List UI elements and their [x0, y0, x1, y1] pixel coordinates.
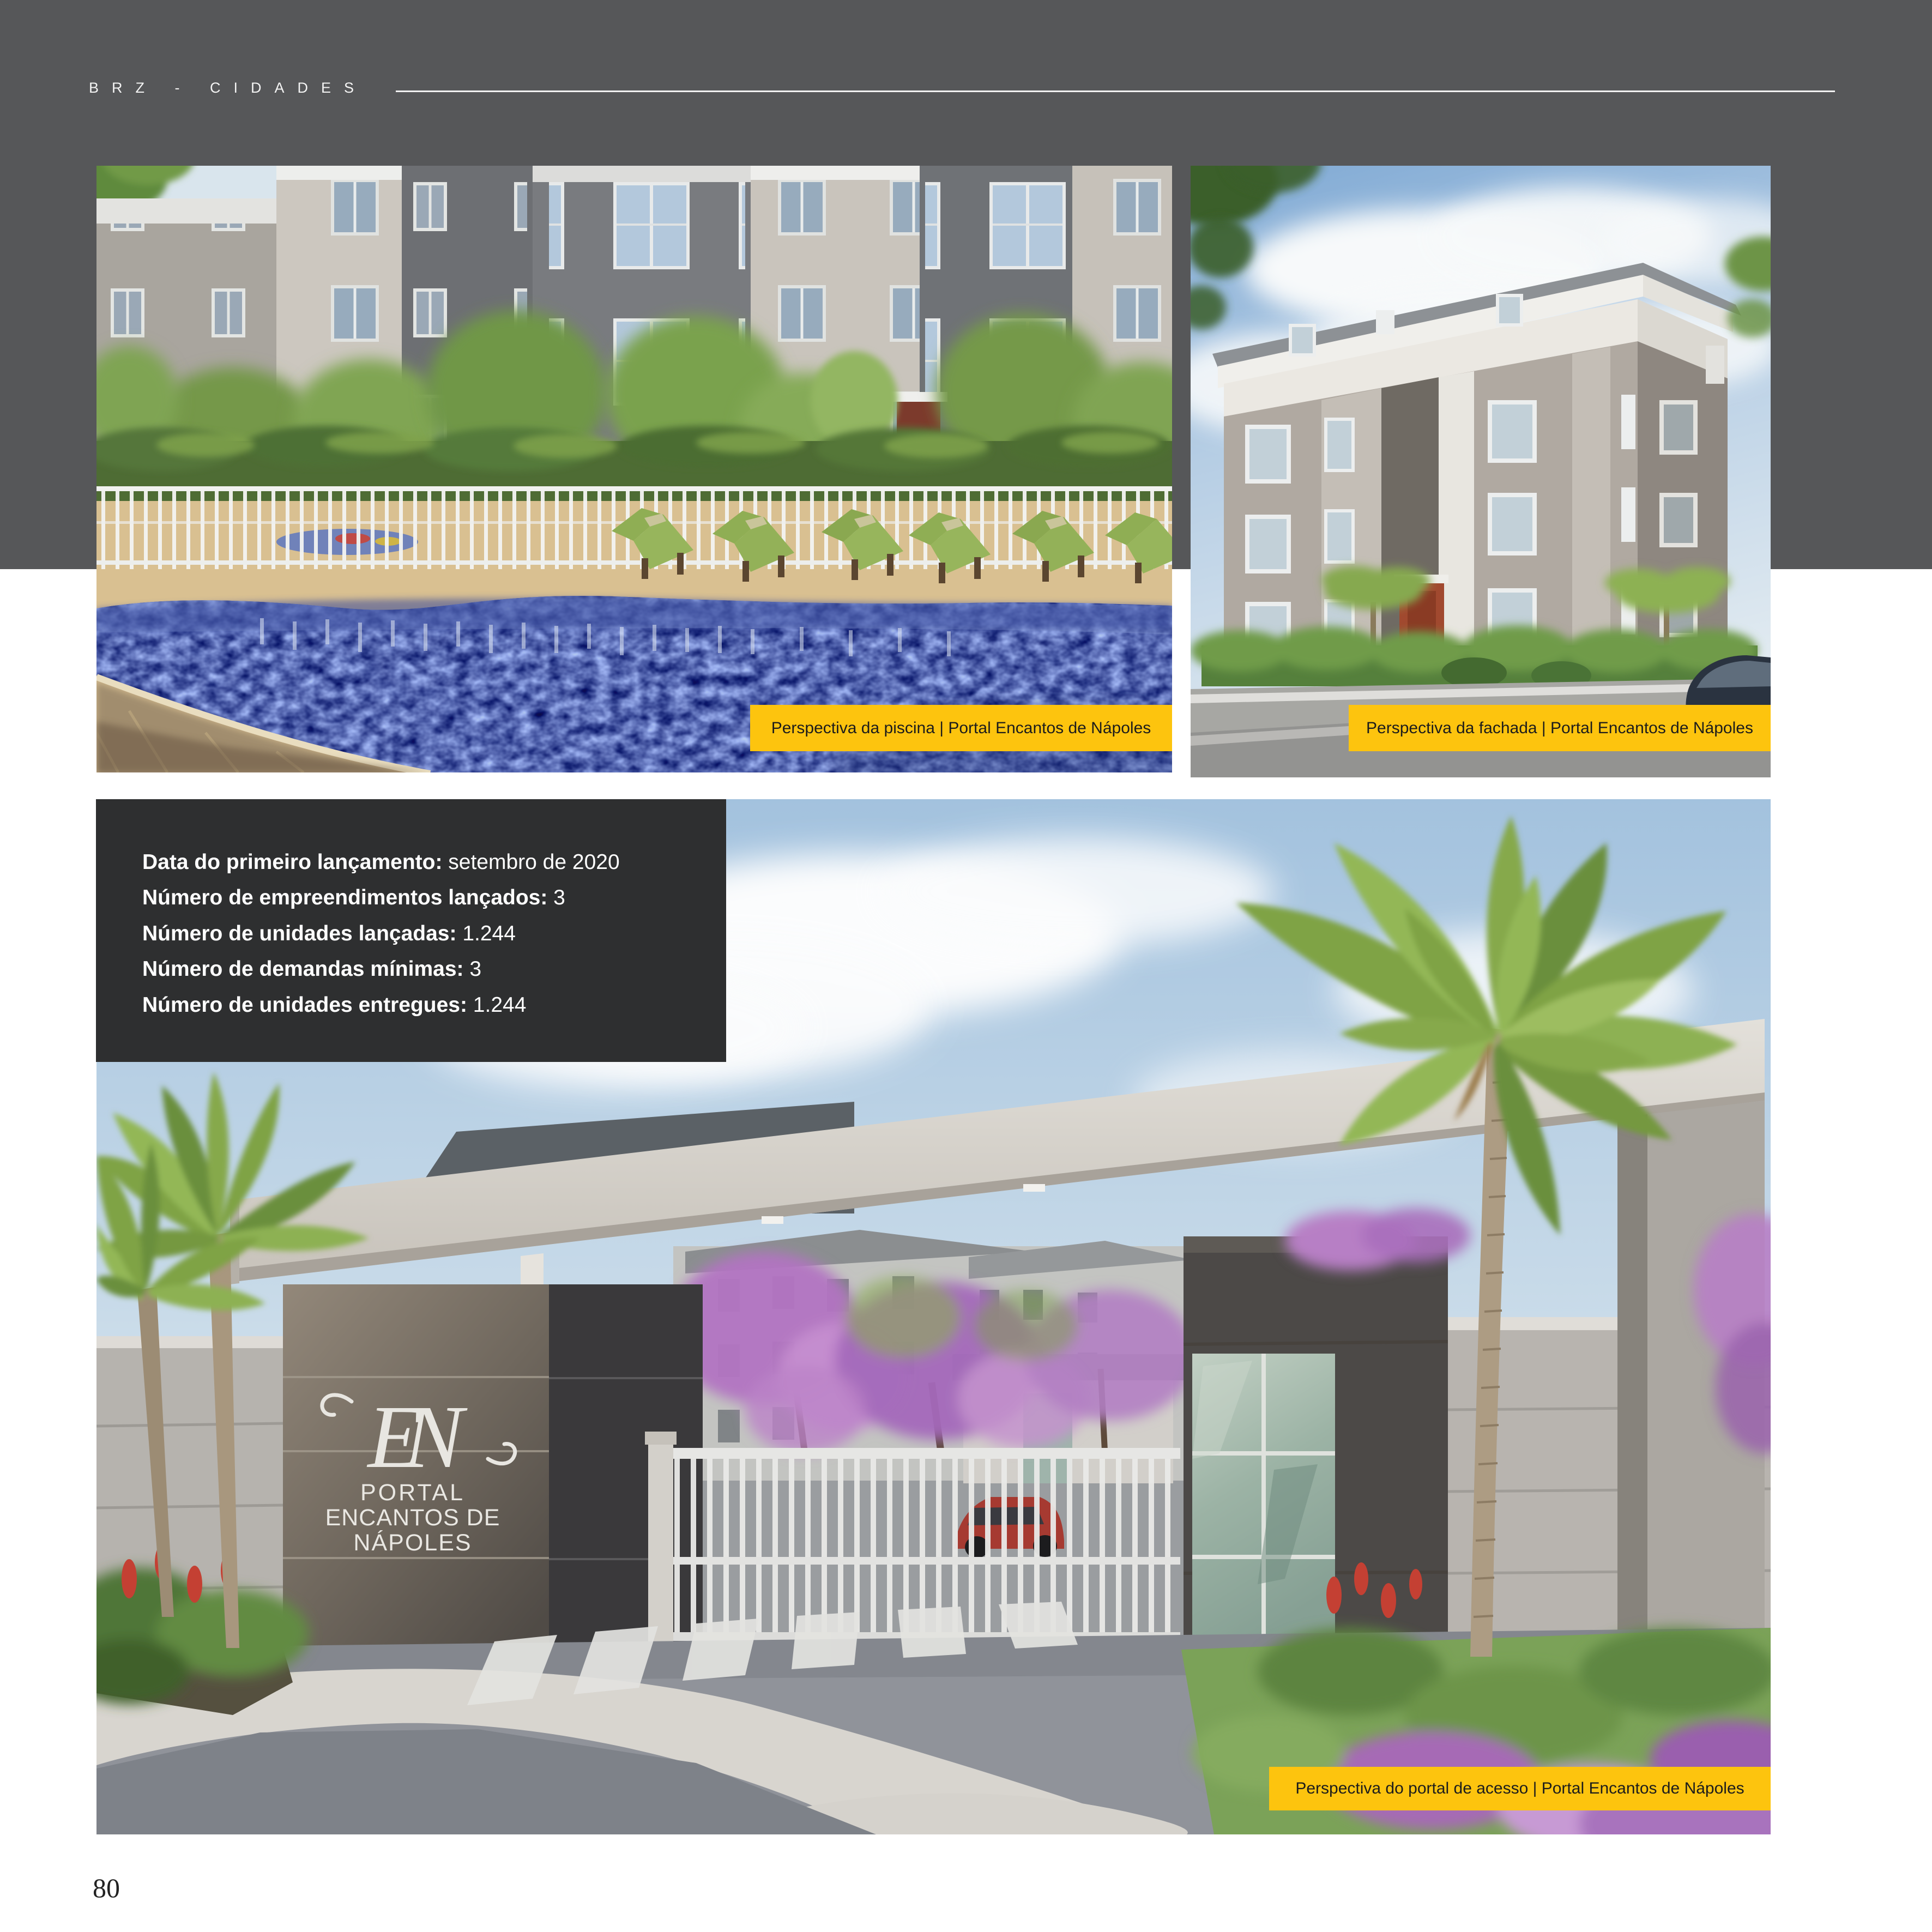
- svg-text:NÁPOLES: NÁPOLES: [353, 1530, 472, 1556]
- svg-text:PORTAL: PORTAL: [360, 1480, 465, 1506]
- svg-text:N: N: [402, 1387, 468, 1487]
- svg-text:ENCANTOS DE: ENCANTOS DE: [325, 1505, 500, 1531]
